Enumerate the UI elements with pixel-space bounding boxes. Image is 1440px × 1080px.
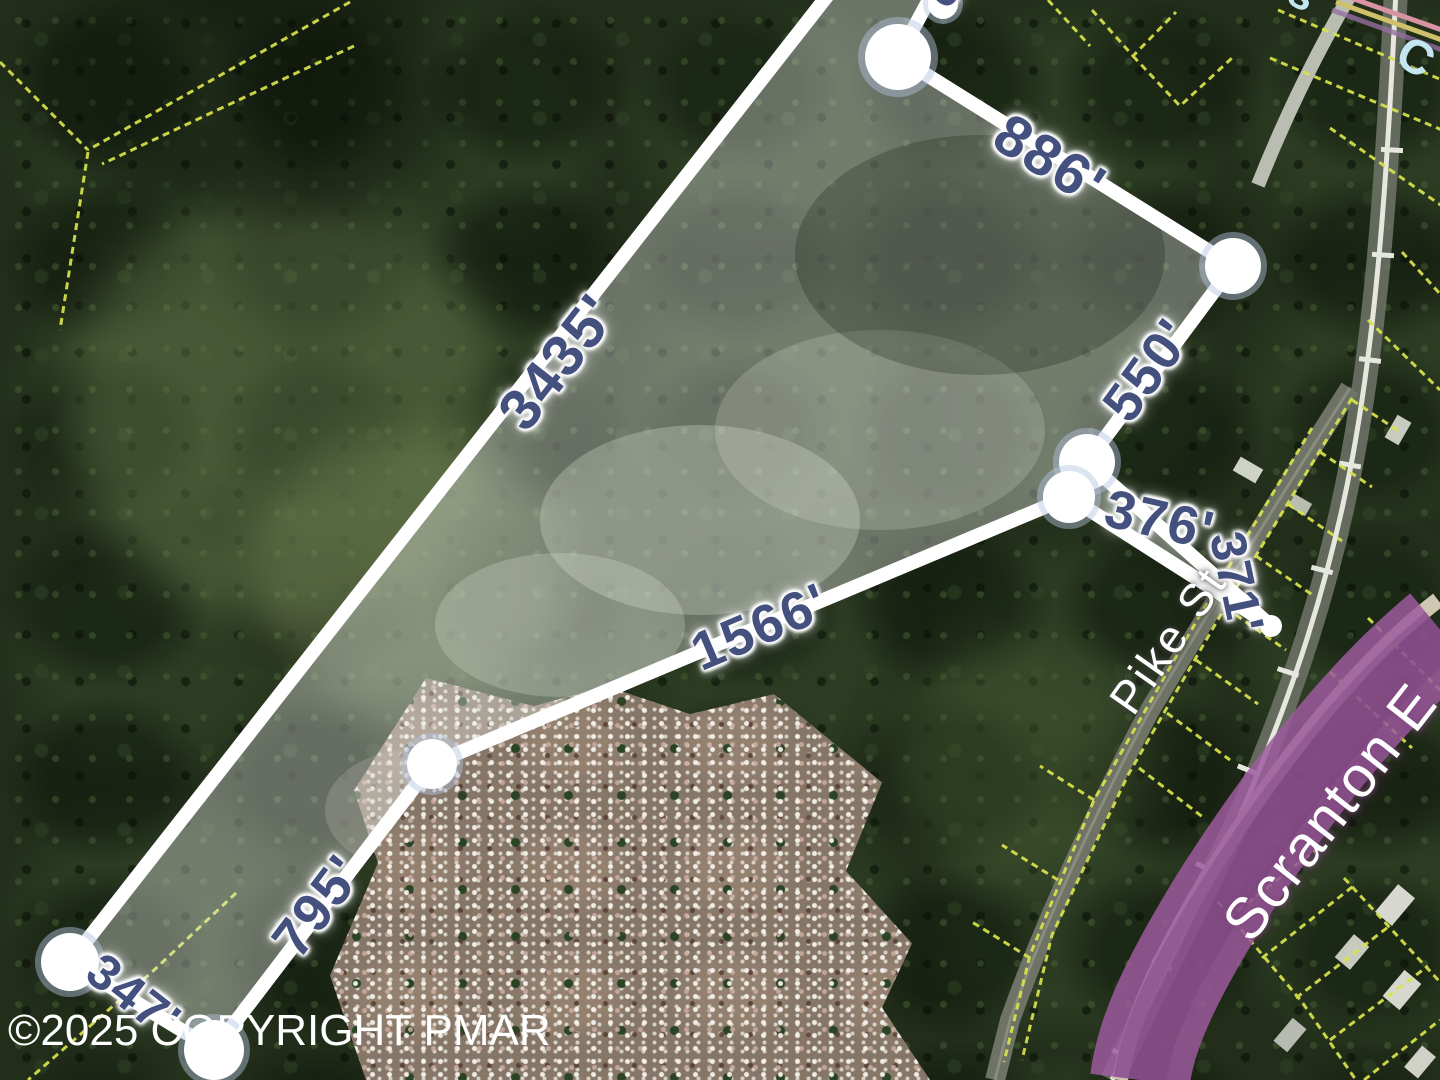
copyright-watermark: ©2025 COPYRIGHT PMAR [8,1006,551,1056]
aerial-parcel-map: 3435' 886' 550' 376' 371' 1566' 795' 347… [0,0,1440,1080]
frontage-road [1258,0,1352,185]
